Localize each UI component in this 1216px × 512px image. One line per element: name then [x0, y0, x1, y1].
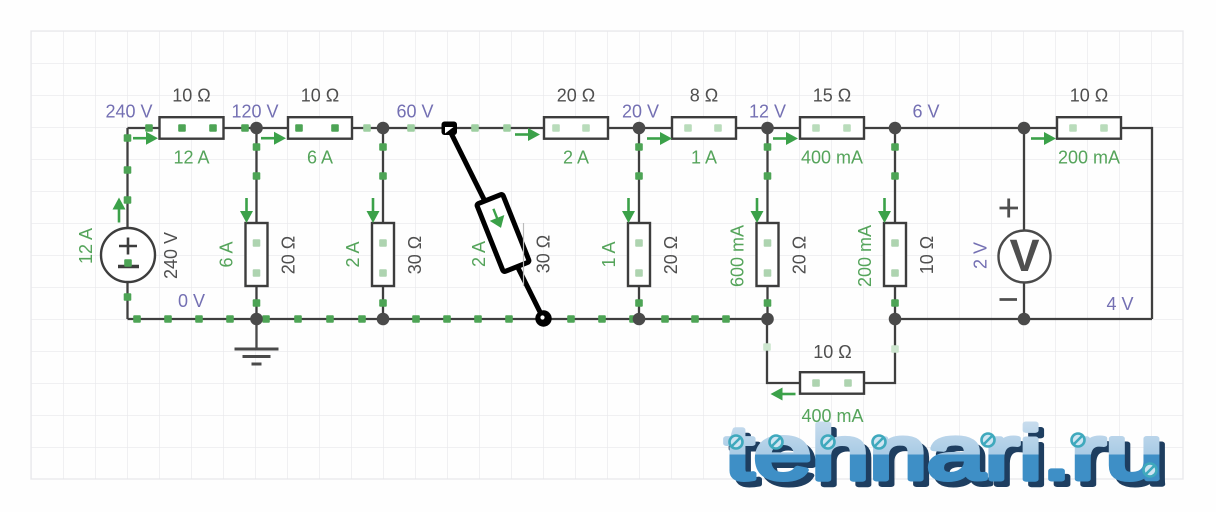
- svg-text:2 A: 2 A: [469, 241, 489, 267]
- svg-text:30 Ω: 30 Ω: [405, 236, 425, 274]
- svg-text:4 V: 4 V: [1106, 294, 1133, 314]
- svg-text:2 V: 2 V: [970, 242, 990, 269]
- svg-text:20 Ω: 20 Ω: [661, 236, 681, 274]
- svg-text:200 mA: 200 mA: [855, 225, 875, 287]
- svg-text:15 Ω: 15 Ω: [813, 86, 851, 106]
- svg-text:10 Ω: 10 Ω: [917, 236, 937, 274]
- svg-text:10 Ω: 10 Ω: [172, 86, 210, 106]
- svg-text:20 Ω: 20 Ω: [557, 86, 595, 106]
- svg-text:12 A: 12 A: [173, 148, 209, 168]
- svg-text:8 Ω: 8 Ω: [690, 86, 718, 106]
- svg-text:240 V: 240 V: [105, 102, 152, 122]
- svg-text:400 mA: 400 mA: [801, 406, 863, 426]
- svg-text:20 Ω: 20 Ω: [278, 236, 298, 274]
- svg-text:1 A: 1 A: [599, 241, 619, 267]
- svg-text:6 A: 6 A: [307, 148, 333, 168]
- svg-text:10 Ω: 10 Ω: [301, 86, 339, 106]
- svg-text:V: V: [1009, 230, 1039, 281]
- svg-text:400 mA: 400 mA: [801, 148, 863, 168]
- svg-text:30 Ω: 30 Ω: [533, 235, 553, 273]
- svg-text:240 V: 240 V: [161, 232, 181, 279]
- svg-text:200 mA: 200 mA: [1058, 148, 1120, 168]
- svg-text:tehnari.ru: tehnari.ru: [725, 411, 1163, 495]
- svg-text:2 A: 2 A: [563, 148, 589, 168]
- svg-text:120 V: 120 V: [231, 102, 278, 122]
- svg-text:6 V: 6 V: [912, 102, 939, 122]
- svg-text:10 Ω: 10 Ω: [813, 342, 851, 362]
- svg-text:6 A: 6 A: [216, 241, 236, 267]
- svg-text:600 mA: 600 mA: [727, 225, 747, 287]
- svg-text:0 V: 0 V: [178, 291, 205, 311]
- svg-text:2 A: 2 A: [343, 241, 363, 267]
- svg-text:60 V: 60 V: [396, 102, 433, 122]
- svg-text:12 A: 12 A: [76, 228, 96, 264]
- svg-text:20 V: 20 V: [622, 102, 659, 122]
- svg-text:1 A: 1 A: [691, 148, 717, 168]
- svg-text:12 V: 12 V: [749, 102, 786, 122]
- svg-text:10 Ω: 10 Ω: [1070, 86, 1108, 106]
- svg-text:20 Ω: 20 Ω: [789, 236, 809, 274]
